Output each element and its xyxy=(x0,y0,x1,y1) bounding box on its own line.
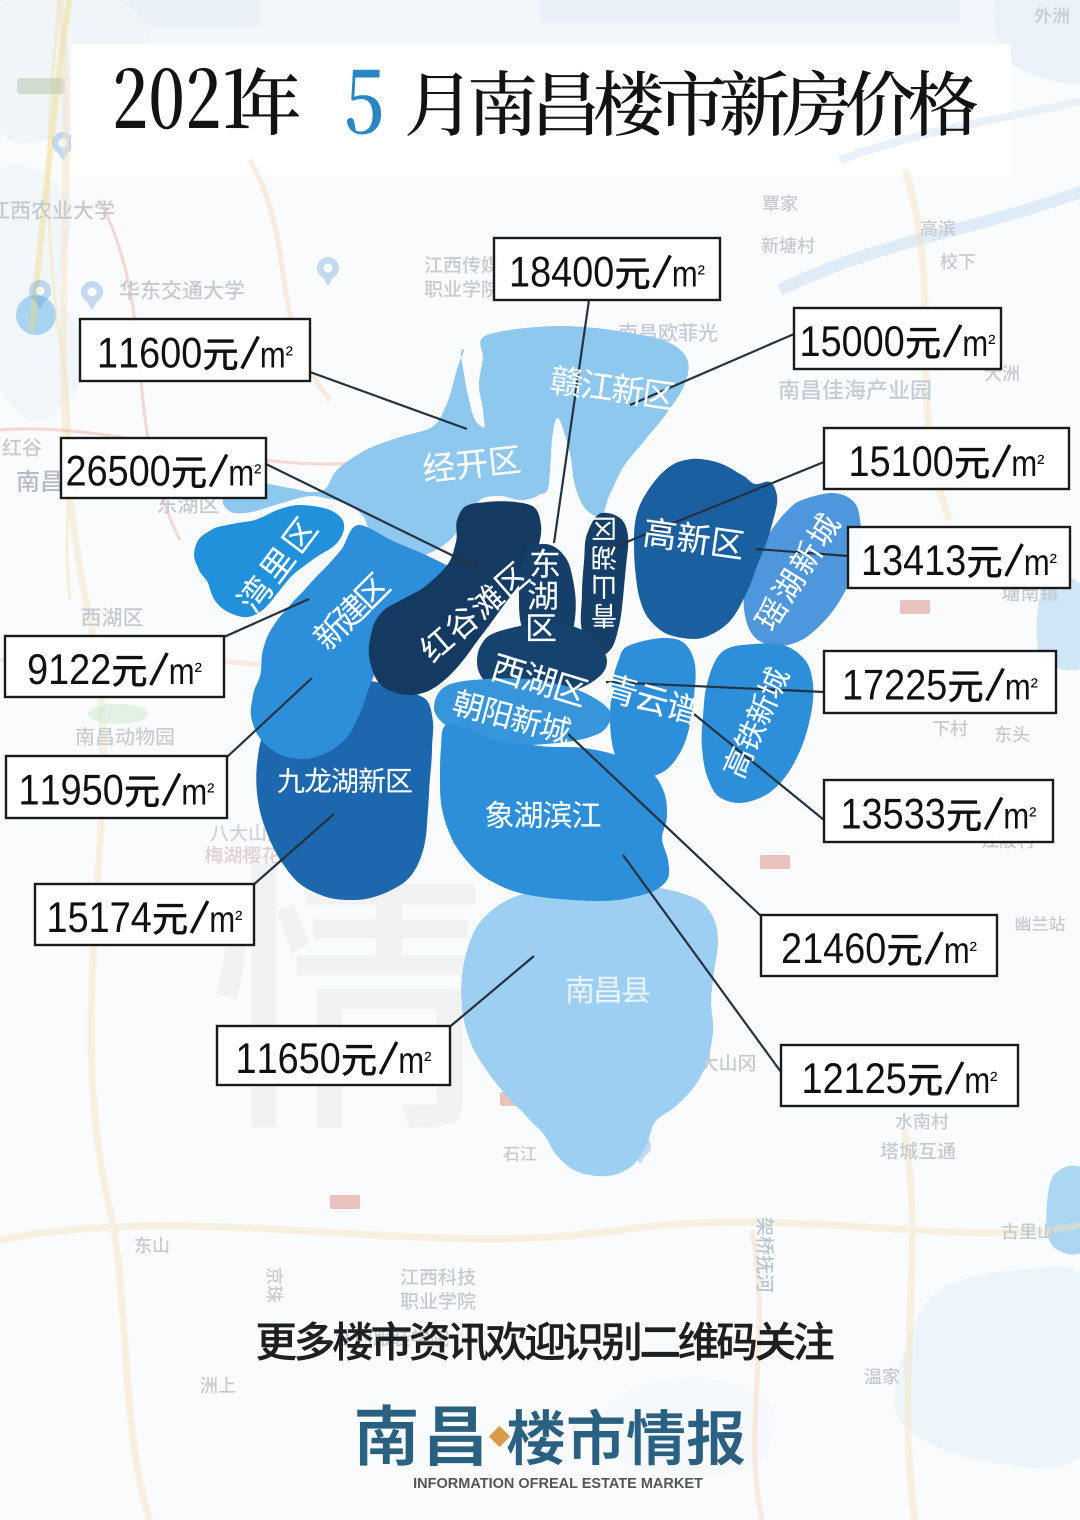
svg-text:INFORMATION OFREAL ESTATE MARK: INFORMATION OFREAL ESTATE MARKET xyxy=(413,1476,703,1492)
